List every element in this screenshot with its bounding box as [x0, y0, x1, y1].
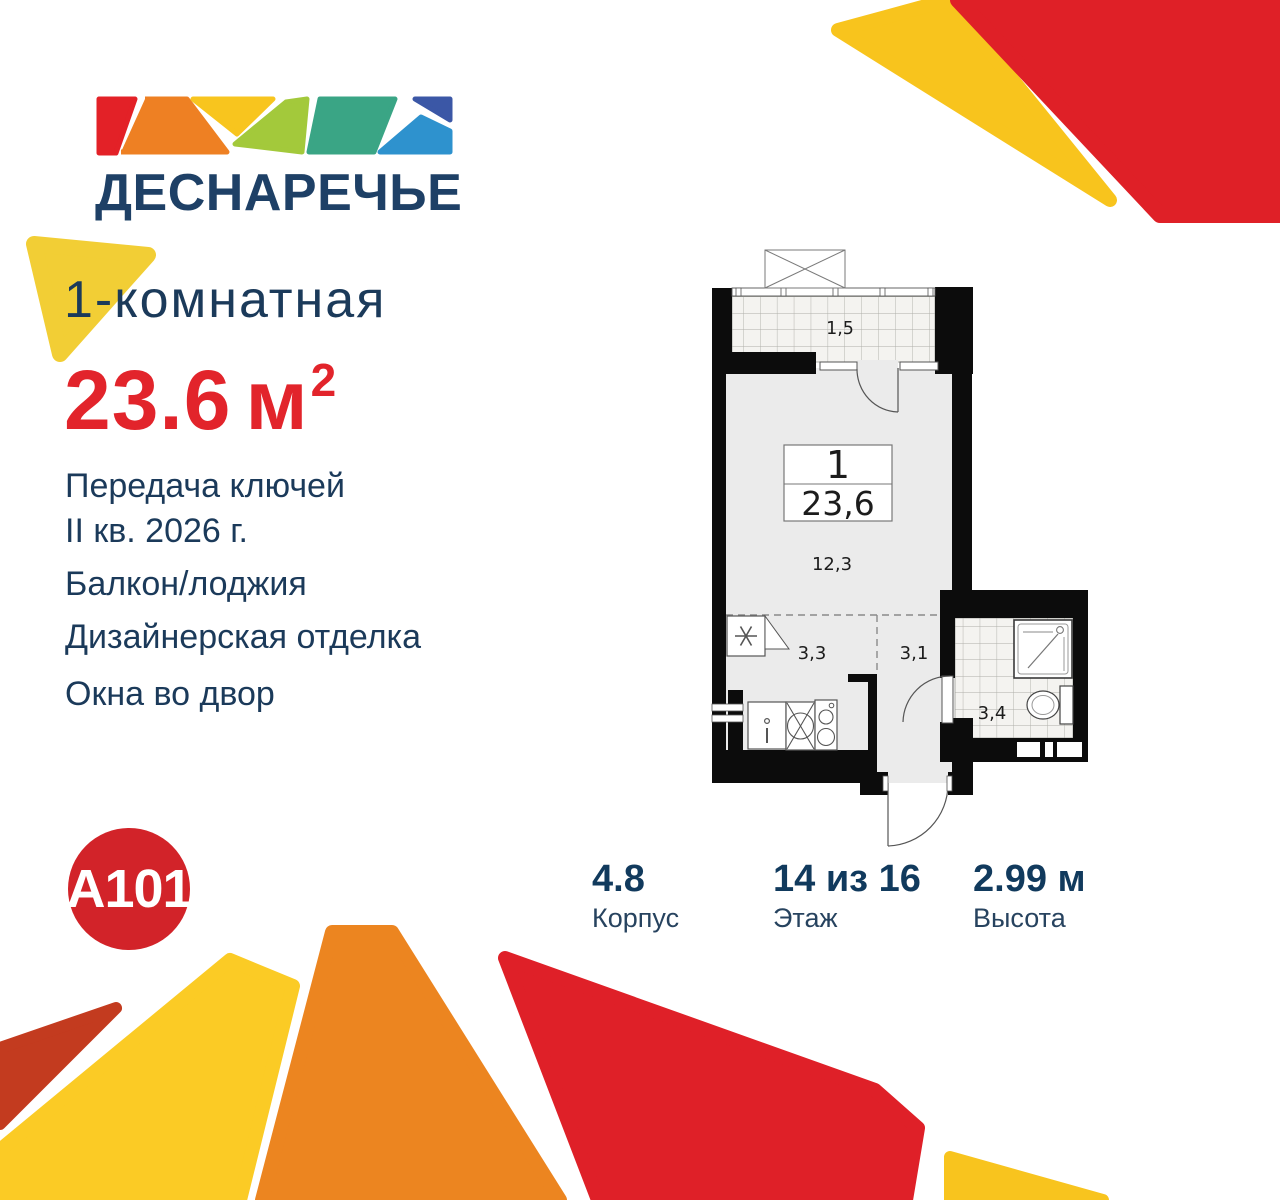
area-unit: м — [246, 353, 309, 447]
floor-value: 14 из 16 — [773, 858, 921, 901]
kitchen-sink-icon — [748, 702, 786, 749]
living-area-label: 12,3 — [812, 554, 852, 575]
kitchen-area-label: 3,3 — [798, 643, 827, 664]
unit-number: 1 — [826, 443, 850, 487]
bath-area-label: 3,4 — [978, 703, 1007, 724]
shower-icon — [1014, 620, 1072, 678]
area-value: 23.6 — [64, 353, 232, 447]
handover-line1: Передача ключей — [65, 464, 345, 509]
entry-door — [883, 776, 952, 846]
rooms-title: 1-комнатная — [64, 270, 386, 330]
crossed-box — [765, 250, 845, 288]
building-label: Корпус — [592, 903, 679, 934]
feature-finish: Дизайнерская отделка — [65, 615, 421, 660]
balcony-area-label: 1,5 — [826, 319, 854, 339]
floor-plan: 1 23,6 1,5 12,3 3,3 3,1 3,4 — [700, 238, 1100, 863]
vent-boxes — [1017, 742, 1082, 757]
brand-logo-mosaic-icon — [95, 94, 465, 158]
area-headline: 23.6м2 — [64, 352, 335, 449]
developer-logo: A101 — [68, 828, 190, 950]
brand-name: ДЕСНАРЕЧЬЕ — [95, 163, 462, 223]
unit-area: 23,6 — [801, 484, 874, 523]
height-value: 2.99 м — [973, 858, 1086, 901]
feature-balcony: Балкон/лоджия — [65, 562, 307, 607]
floor-label: Этаж — [773, 903, 838, 934]
handover-info: Передача ключей II кв. 2026 г. — [65, 464, 345, 554]
stove-icon — [786, 702, 815, 750]
feature-windows: Окна во двор — [65, 672, 275, 717]
developer-name: A101 — [66, 858, 191, 920]
handover-line2: II кв. 2026 г. — [65, 509, 345, 554]
oven-burners-icon — [815, 700, 837, 750]
unit-label-box: 1 23,6 — [784, 443, 892, 523]
hall-area-label: 3,1 — [900, 643, 929, 664]
building-value: 4.8 — [592, 858, 645, 901]
area-exponent: 2 — [311, 354, 338, 406]
balcony-glazing — [732, 288, 935, 296]
listing-card: ДЕСНАРЕЧЬЕ 1-комнатная 23.6м2 Передача к… — [0, 0, 1280, 1200]
height-label: Высота — [973, 903, 1066, 934]
